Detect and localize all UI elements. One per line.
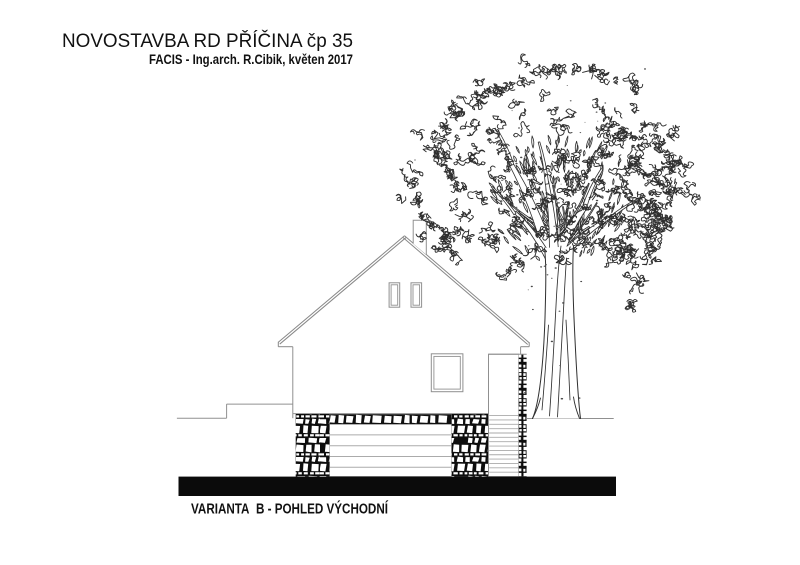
svg-text:VARIANTA B - POHLED VÝCHODNÍ: VARIANTA B - POHLED VÝCHODNÍ (191, 500, 389, 518)
svg-text:NOVOSTAVBA RD PŘÍČINA čp 35: NOVOSTAVBA RD PŘÍČINA čp 35 (62, 29, 353, 52)
svg-text:FACIS - Ing.arch. R.Cibik, kvě: FACIS - Ing.arch. R.Cibik, květen 2017 (149, 52, 353, 67)
